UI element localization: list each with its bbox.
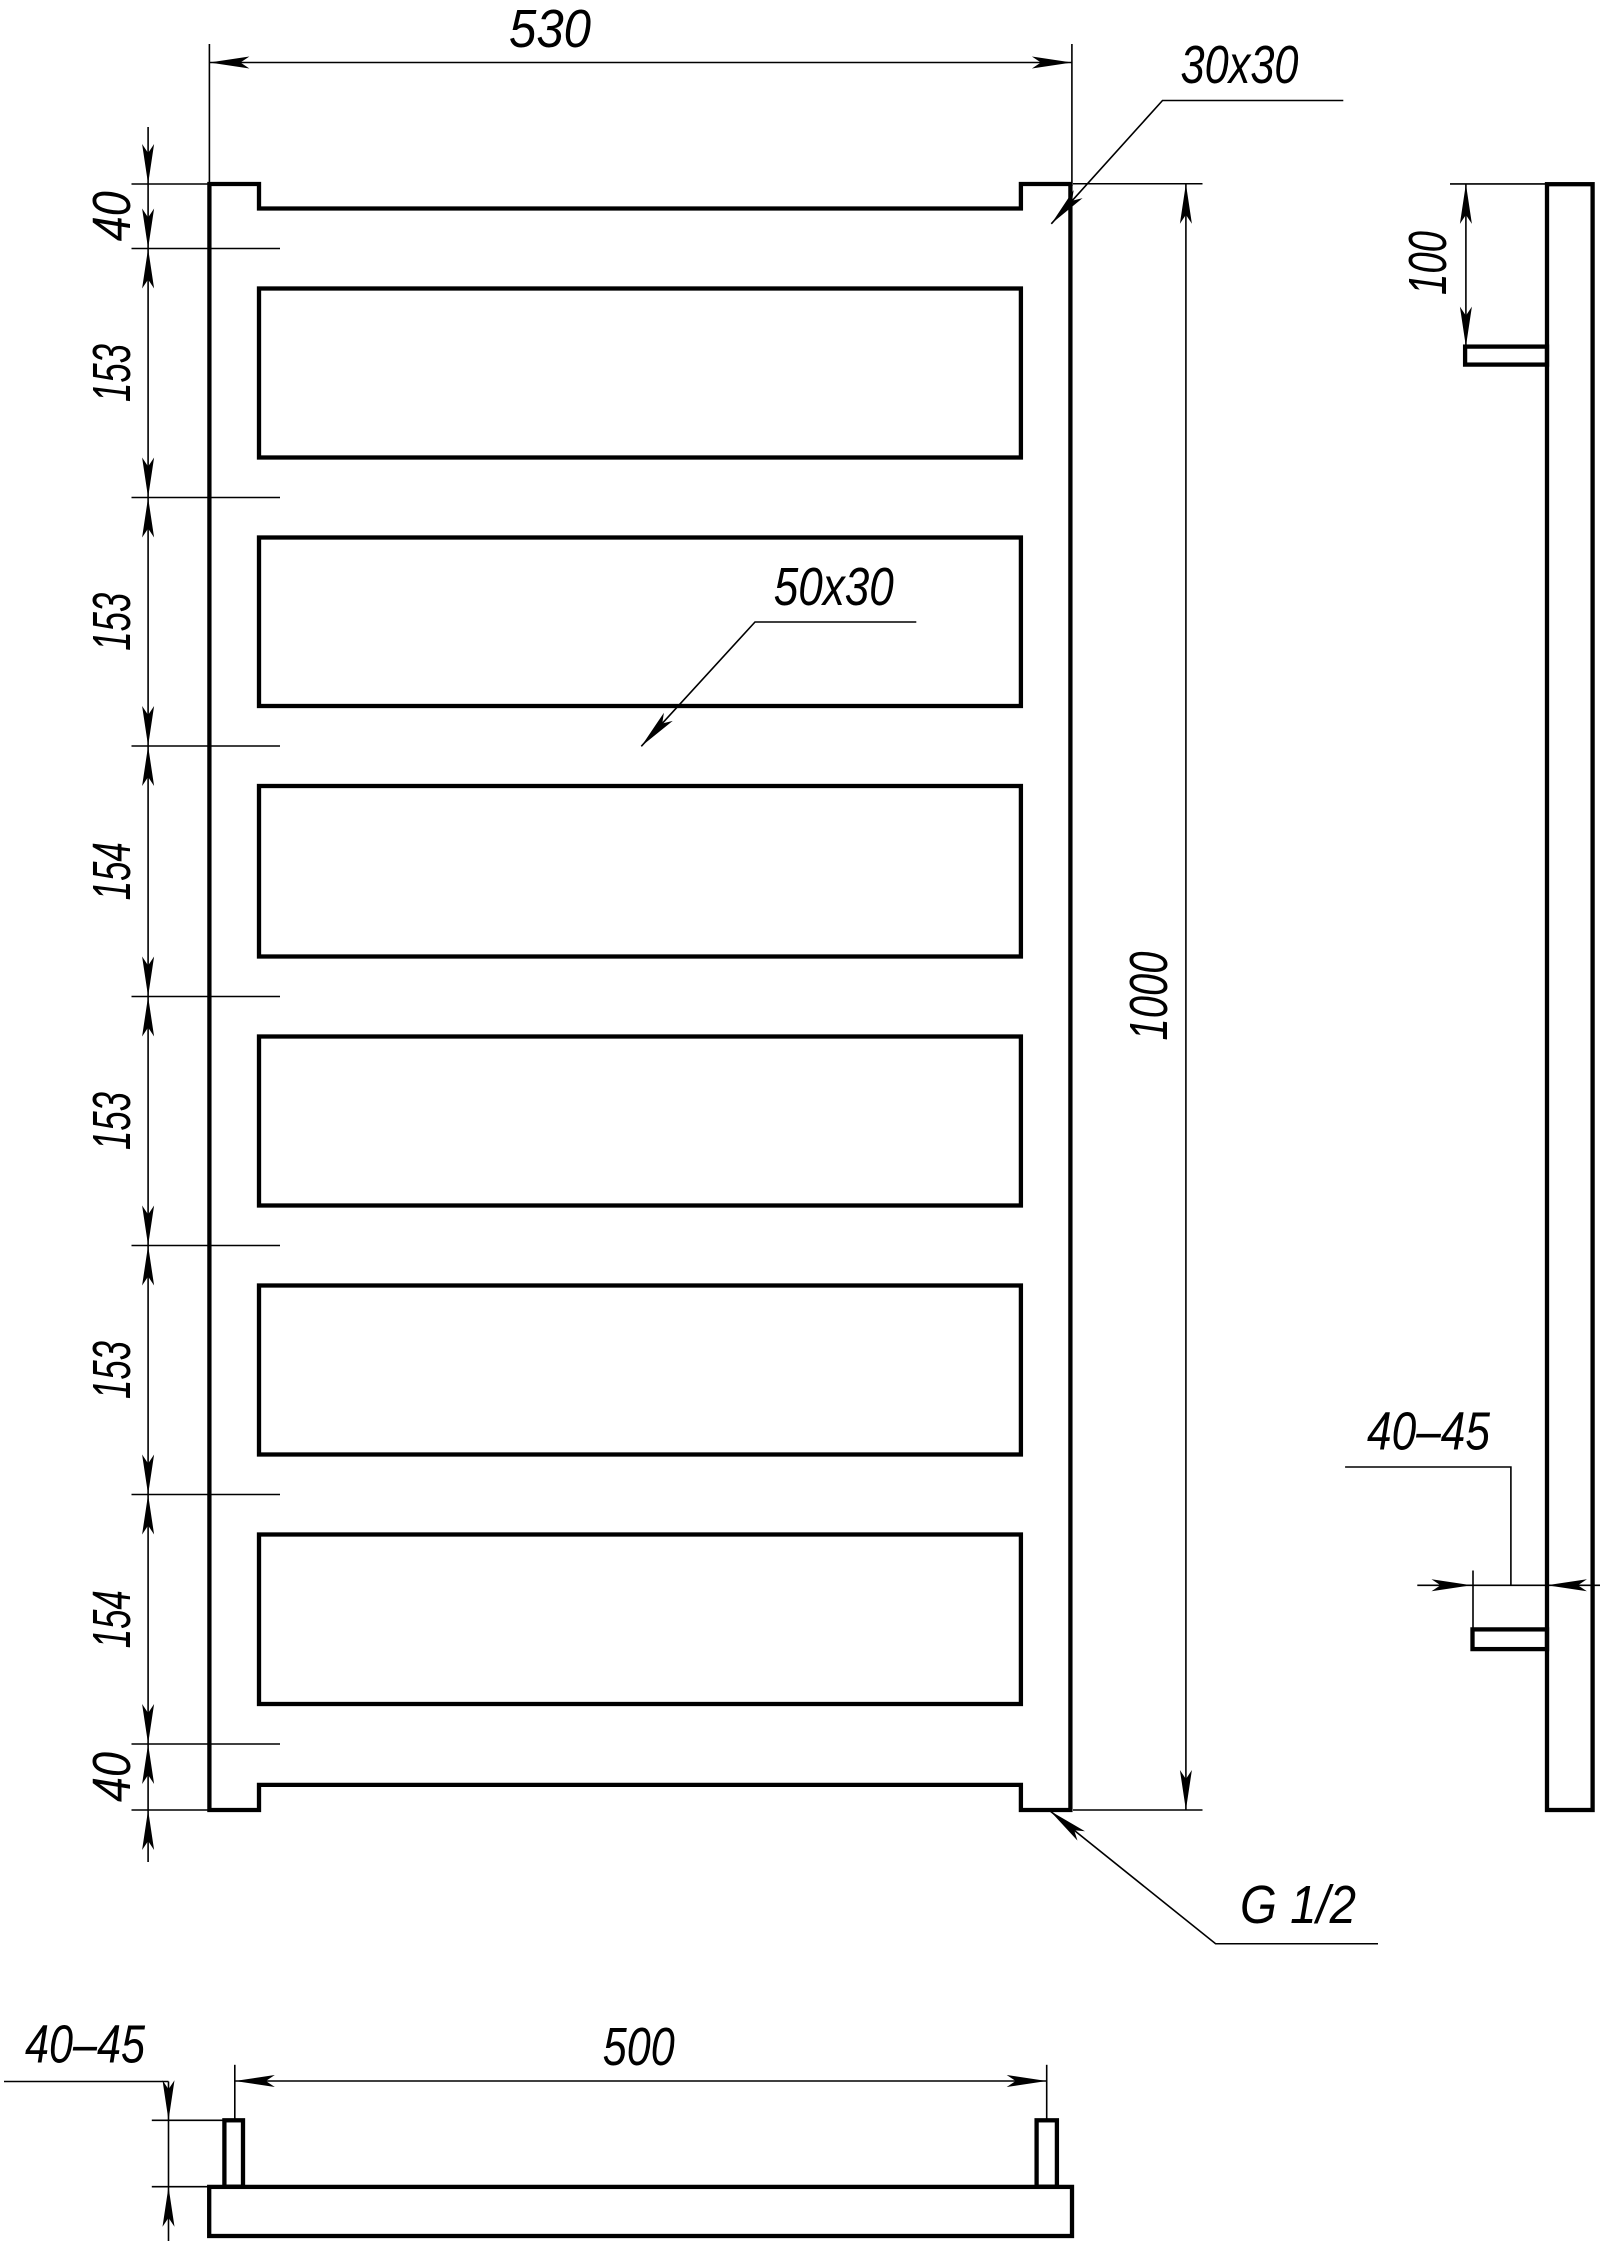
svg-text:40: 40 bbox=[82, 191, 142, 241]
svg-text:40: 40 bbox=[82, 1752, 142, 1802]
svg-text:40–45: 40–45 bbox=[25, 2015, 146, 2075]
svg-text:530: 530 bbox=[509, 0, 591, 59]
svg-text:154: 154 bbox=[82, 842, 142, 900]
svg-text:153: 153 bbox=[82, 1341, 142, 1399]
svg-text:30x30: 30x30 bbox=[1181, 35, 1299, 95]
svg-text:50x30: 50x30 bbox=[774, 557, 894, 617]
svg-text:500: 500 bbox=[603, 2017, 675, 2077]
svg-text:40–45: 40–45 bbox=[1367, 1402, 1491, 1462]
svg-text:153: 153 bbox=[82, 1092, 142, 1150]
svg-text:153: 153 bbox=[82, 593, 142, 651]
svg-text:G 1/2: G 1/2 bbox=[1240, 1875, 1356, 1935]
svg-text:153: 153 bbox=[82, 344, 142, 402]
svg-text:1000: 1000 bbox=[1119, 952, 1179, 1041]
svg-text:154: 154 bbox=[82, 1590, 142, 1648]
svg-text:100: 100 bbox=[1398, 231, 1458, 295]
